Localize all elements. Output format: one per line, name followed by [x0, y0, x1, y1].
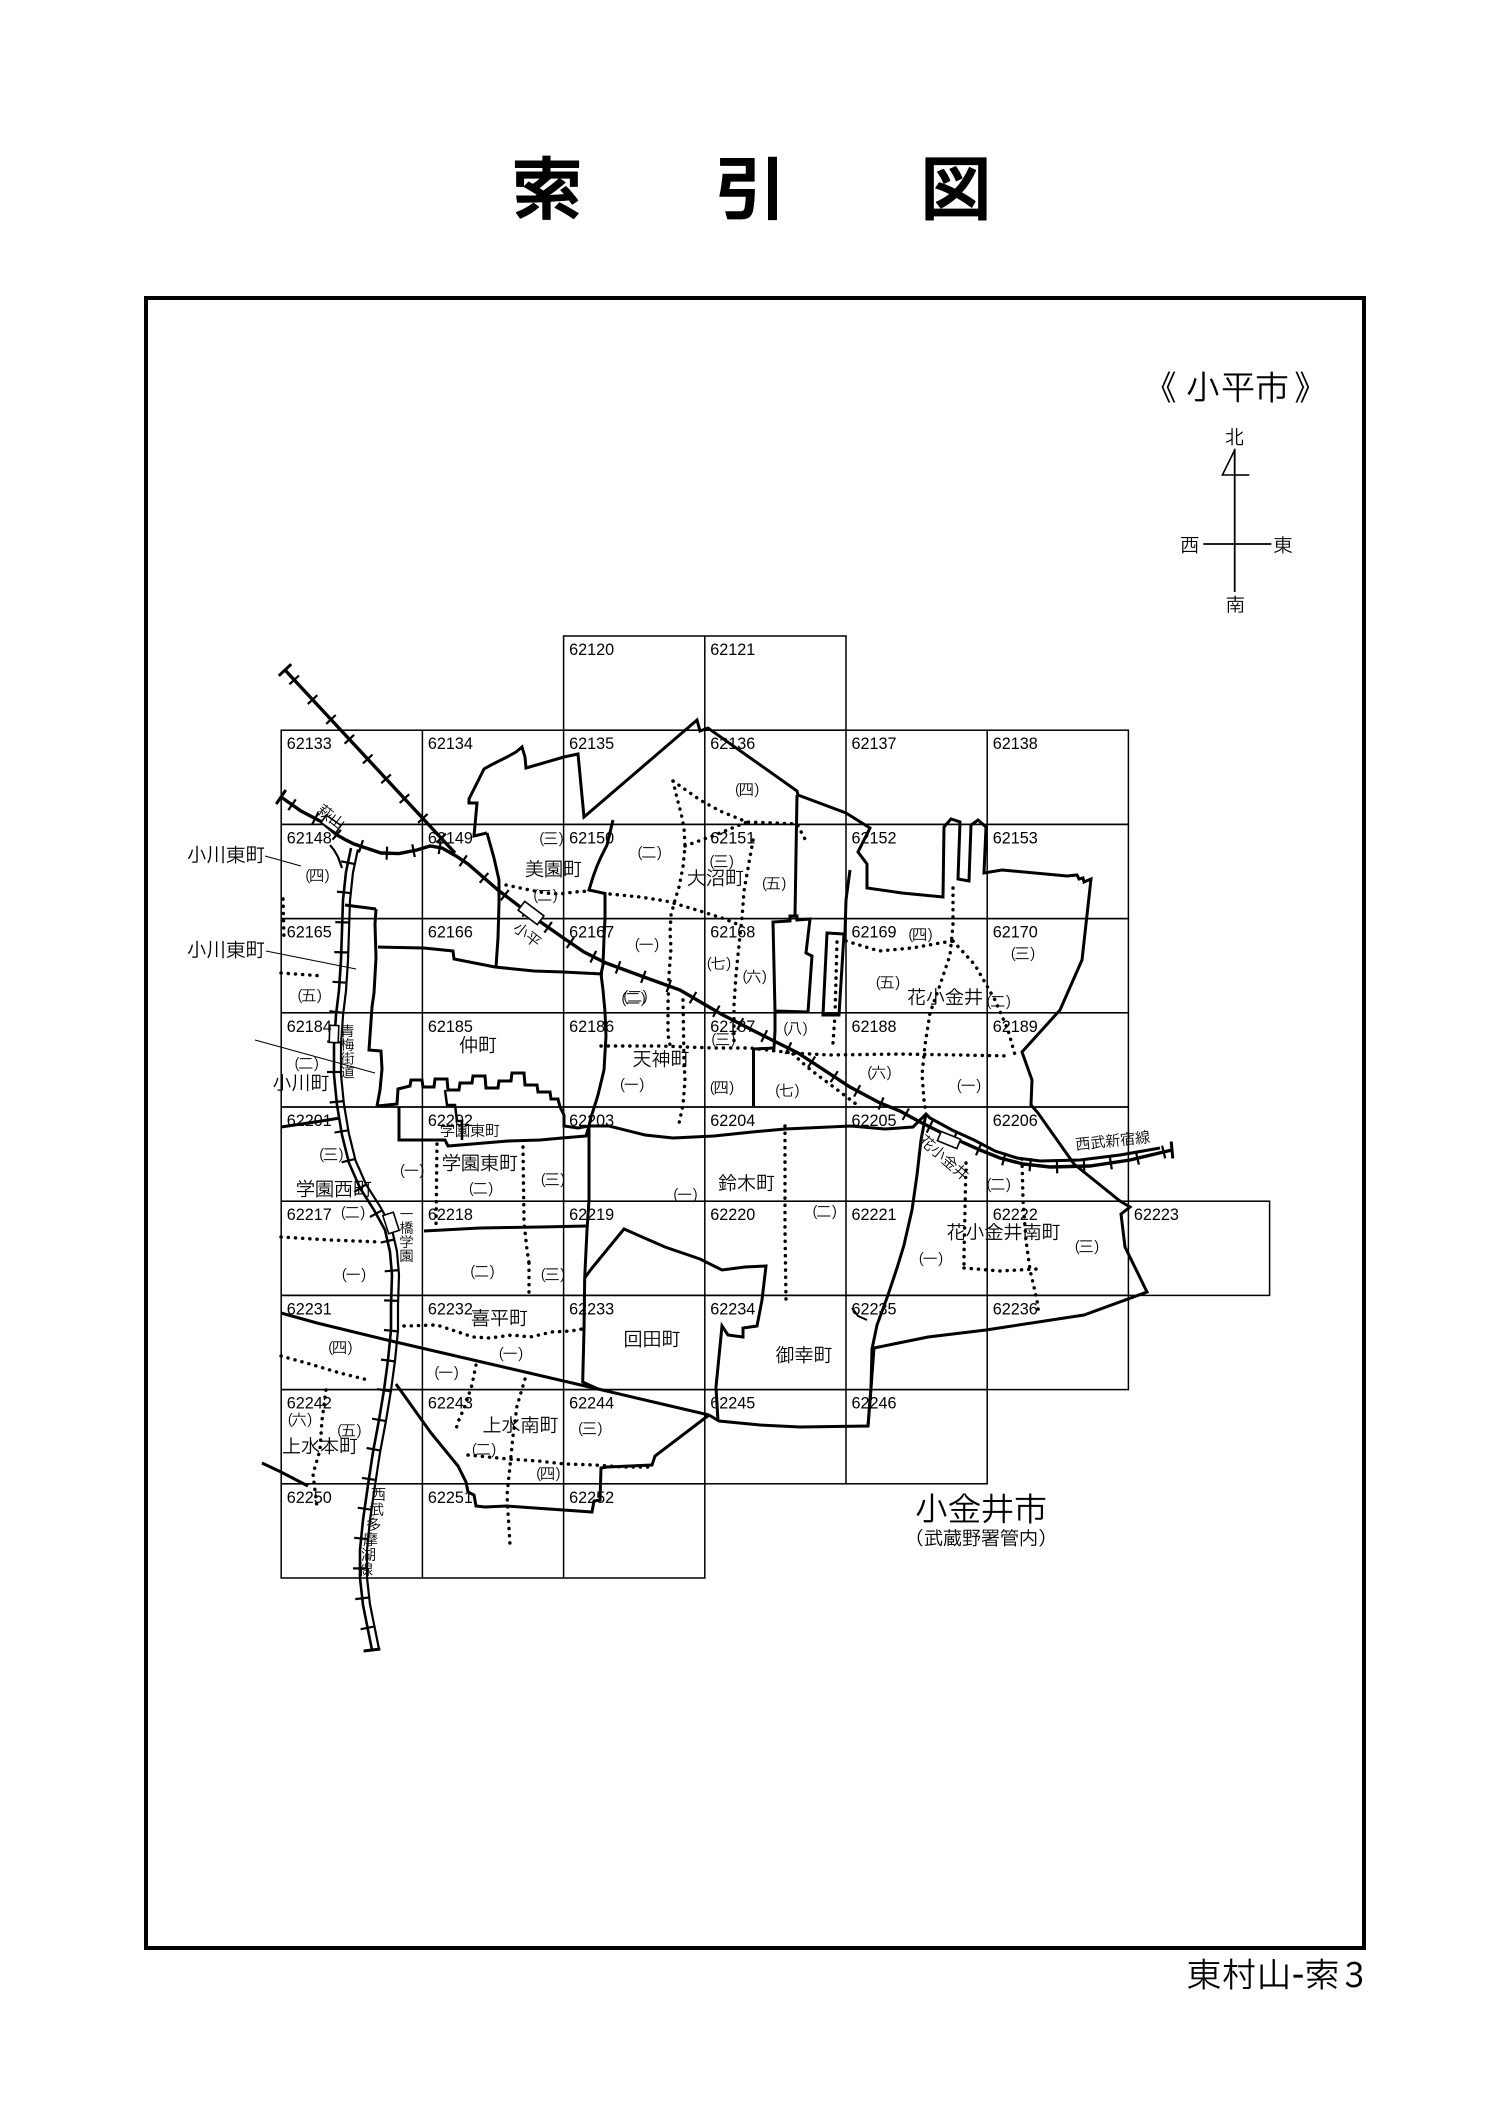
svg-text:62134: 62134 [428, 735, 473, 753]
svg-text:62166: 62166 [428, 924, 473, 942]
svg-text:62222: 62222 [993, 1206, 1038, 1224]
svg-text:62136: 62136 [710, 735, 755, 753]
svg-text:62245: 62245 [710, 1395, 755, 1413]
svg-text:62244: 62244 [569, 1395, 614, 1413]
svg-text:62133: 62133 [287, 735, 332, 753]
svg-text:62137: 62137 [852, 735, 897, 753]
svg-text:62186: 62186 [569, 1018, 614, 1036]
svg-text:62170: 62170 [993, 924, 1038, 942]
svg-text:62250: 62250 [287, 1489, 332, 1507]
svg-text:62235: 62235 [852, 1300, 897, 1318]
svg-text:62184: 62184 [287, 1018, 332, 1036]
svg-text:62218: 62218 [428, 1206, 473, 1224]
svg-text:62138: 62138 [993, 735, 1038, 753]
svg-text:62149: 62149 [428, 829, 473, 847]
svg-text:62223: 62223 [1134, 1206, 1179, 1224]
svg-text:62120: 62120 [569, 641, 614, 659]
svg-text:62188: 62188 [852, 1018, 897, 1036]
svg-text:62135: 62135 [569, 735, 614, 753]
svg-text:62231: 62231 [287, 1300, 332, 1318]
svg-text:62252: 62252 [569, 1489, 614, 1507]
svg-text:62185: 62185 [428, 1018, 473, 1036]
svg-text:62233: 62233 [569, 1300, 614, 1318]
svg-text:62217: 62217 [287, 1206, 332, 1224]
svg-text:62201: 62201 [287, 1112, 332, 1130]
svg-text:62205: 62205 [852, 1112, 897, 1130]
svg-text:62152: 62152 [852, 829, 897, 847]
svg-text:62251: 62251 [428, 1489, 473, 1507]
svg-text:62219: 62219 [569, 1206, 614, 1224]
svg-text:62203: 62203 [569, 1112, 614, 1130]
svg-text:62246: 62246 [852, 1395, 897, 1413]
svg-text:62151: 62151 [710, 829, 755, 847]
svg-text:62242: 62242 [287, 1395, 332, 1413]
svg-text:62165: 62165 [287, 924, 332, 942]
svg-text:62202: 62202 [428, 1112, 473, 1130]
svg-text:62232: 62232 [428, 1300, 473, 1318]
svg-text:62169: 62169 [852, 924, 897, 942]
svg-text:62121: 62121 [710, 641, 755, 659]
svg-text:62189: 62189 [993, 1018, 1038, 1036]
svg-text:62168: 62168 [710, 924, 755, 942]
svg-text:62236: 62236 [993, 1300, 1038, 1318]
svg-text:62220: 62220 [710, 1206, 755, 1224]
svg-text:62206: 62206 [993, 1112, 1038, 1130]
svg-text:62243: 62243 [428, 1395, 473, 1413]
svg-text:62234: 62234 [710, 1300, 755, 1318]
svg-text:62221: 62221 [852, 1206, 897, 1224]
svg-text:62150: 62150 [569, 829, 614, 847]
svg-text:62148: 62148 [287, 829, 332, 847]
svg-text:62204: 62204 [710, 1112, 755, 1130]
svg-text:62187: 62187 [710, 1018, 755, 1036]
svg-text:62153: 62153 [993, 829, 1038, 847]
svg-text:62167: 62167 [569, 924, 614, 942]
